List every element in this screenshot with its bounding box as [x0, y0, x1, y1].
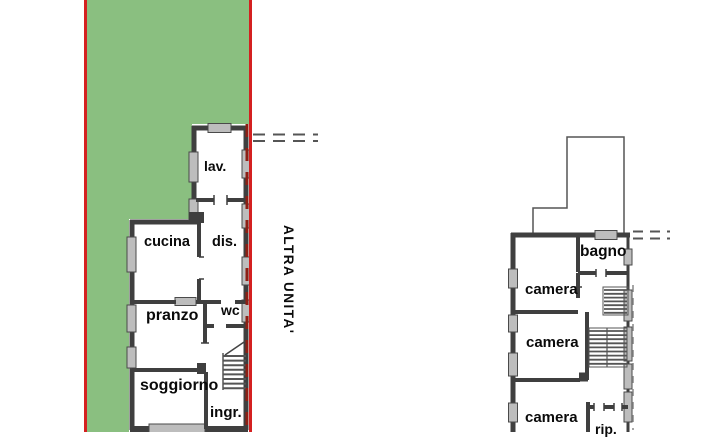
room-label-ingr: ingr. [210, 405, 242, 420]
room-label-camera-1: camera [525, 282, 578, 297]
roof-outline [533, 137, 624, 233]
door-jamb-block [197, 363, 206, 374]
other-unit-annotation: ALTRA UNITA' [281, 225, 295, 335]
room-label-dis: dis. [212, 235, 237, 250]
room-label-lav: lav. [204, 159, 226, 173]
adjoining-unit-dashes-right-plan [633, 232, 670, 239]
room-label-rip: rip. [595, 422, 617, 436]
room-label-wc: wc [221, 303, 240, 317]
plan-canvas [0, 0, 720, 432]
room-label-pranzo: pranzo [146, 308, 198, 324]
chimney-block [189, 212, 204, 223]
room-label-bagno: bagno [580, 244, 627, 260]
room-label-soggiorno: soggiorno [140, 378, 218, 394]
adjoining-unit-dashes-left-plan [253, 135, 318, 142]
door-jamb-block [579, 373, 588, 382]
room-label-camera-2: camera [526, 335, 579, 350]
room-label-camera-3: camera [525, 410, 578, 425]
room-label-cucina: cucina [144, 235, 190, 250]
floor-plan-drawing: lav. cucina dis. pranzo wc soggiorno ing… [0, 0, 720, 432]
